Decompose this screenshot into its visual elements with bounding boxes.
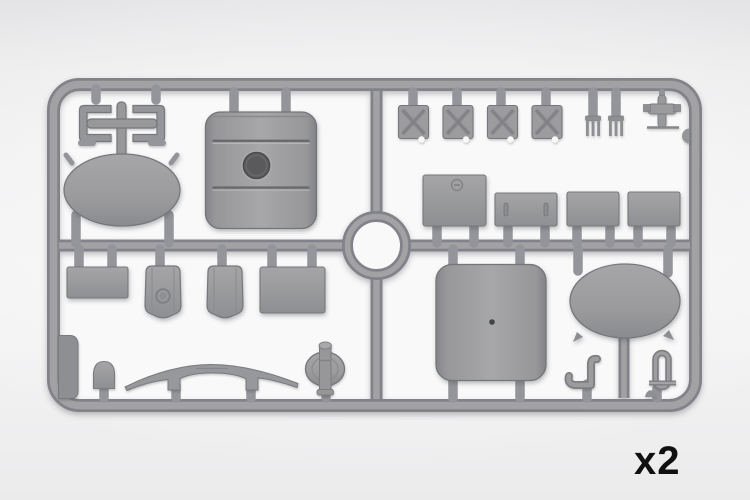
- part-hatch-panel-3: [488, 106, 518, 143]
- part-curved-roof-panel: [206, 112, 317, 229]
- part-backrest-with-ring: [145, 266, 181, 318]
- part-panel-b: [628, 192, 680, 226]
- part-hatch-panel-4: [532, 106, 562, 143]
- part-dome-cap: [94, 362, 115, 389]
- part-hatch-panel-2: [443, 106, 473, 143]
- sprue-illustration: [0, 0, 750, 500]
- part-slotted-panel: [495, 193, 557, 226]
- part-hatch-panel-1: [399, 106, 429, 143]
- part-large-plate: [260, 267, 325, 313]
- part-fork-2: [609, 116, 624, 136]
- part-fork-1: [586, 116, 601, 136]
- part-corner-wedge: [59, 336, 79, 399]
- port-hole: [243, 152, 269, 178]
- quantity-label: x2: [634, 441, 681, 481]
- center-dot: [489, 319, 495, 325]
- part-oval-panel-left: [64, 154, 180, 226]
- part-box-lid: [423, 175, 486, 226]
- part-backrest-plain: [207, 266, 243, 318]
- part-wide-plate: [67, 267, 128, 298]
- part-panel-a: [567, 192, 619, 226]
- axle-pin: [320, 343, 332, 396]
- sprue-photo-stage: x2: [0, 0, 750, 500]
- part-curved-tank-panel: [436, 265, 546, 381]
